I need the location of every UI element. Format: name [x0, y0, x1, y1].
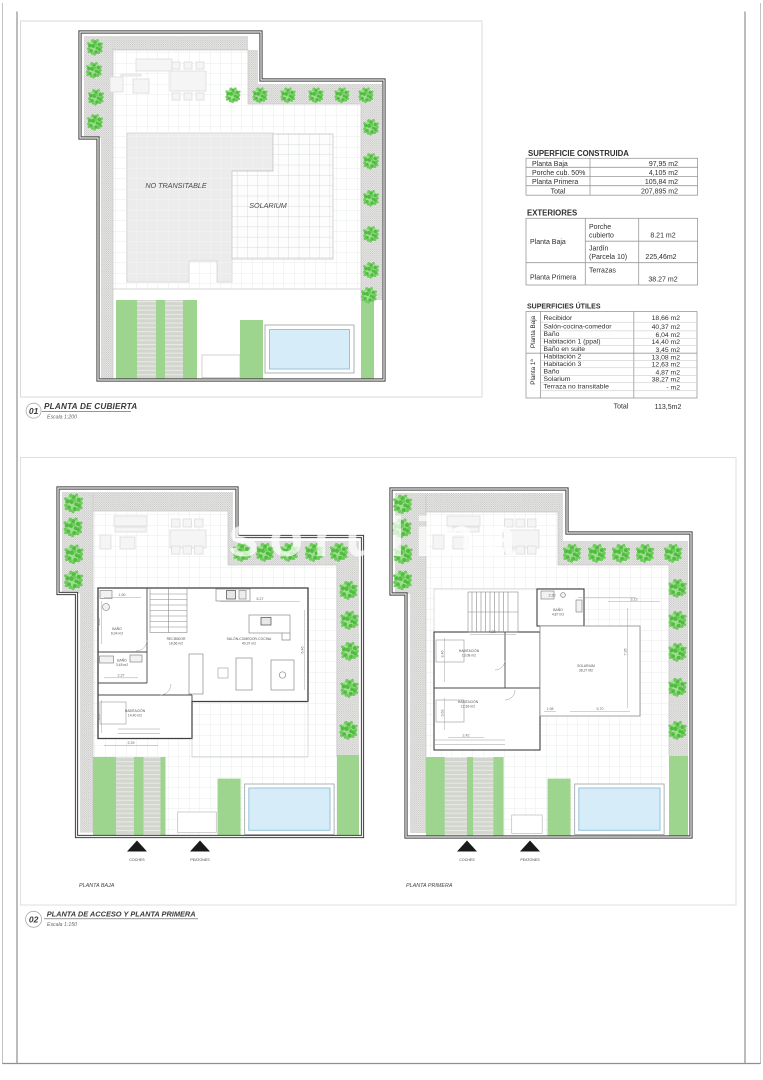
svg-text:8.21 m2: 8.21 m2 — [650, 233, 675, 240]
svg-text:BAÑO: BAÑO — [553, 607, 563, 612]
svg-text:Baño: Baño — [544, 331, 560, 338]
svg-text:Baño: Baño — [544, 369, 560, 376]
svg-text:3,63: 3,63 — [440, 710, 444, 717]
svg-text:14,40 m2: 14,40 m2 — [652, 339, 681, 346]
svg-text:SOLARIUM: SOLARIUM — [249, 201, 287, 210]
svg-text:Salón-cocina-comedor: Salón-cocina-comedor — [544, 324, 613, 331]
svg-text:SUPERFICIE CONSTRUIDA: SUPERFICIE CONSTRUIDA — [528, 149, 629, 158]
svg-text:RECIBIDOR: RECIBIDOR — [167, 637, 186, 641]
svg-text:Planta Baja: Planta Baja — [530, 315, 537, 348]
svg-text:6,04 m2: 6,04 m2 — [111, 632, 123, 636]
svg-text:18,66 m2: 18,66 m2 — [652, 315, 681, 322]
svg-text:SALÓN-COMEDOR-COCINA: SALÓN-COMEDOR-COCINA — [227, 636, 272, 641]
svg-text:SOLARIUM: SOLARIUM — [577, 664, 595, 668]
svg-text:Solarium: Solarium — [544, 376, 571, 383]
svg-text:1,50: 1,50 — [119, 593, 126, 597]
svg-text:Total: Total — [551, 188, 566, 195]
svg-text:sorulina: sorulina — [228, 505, 526, 568]
svg-text:225,46m2: 225,46m2 — [645, 254, 676, 261]
svg-text:12,63 m2: 12,63 m2 — [461, 705, 475, 709]
svg-text:3,39: 3,39 — [128, 741, 135, 745]
svg-text:18,66 m2: 18,66 m2 — [169, 642, 183, 646]
svg-text:(Parcela 10): (Parcela 10) — [589, 254, 627, 261]
svg-text:Planta 1ª: Planta 1ª — [530, 359, 537, 385]
svg-text:7,35: 7,35 — [624, 649, 628, 656]
svg-text:Terraza no transitable: Terraza no transitable — [544, 384, 610, 391]
svg-text:13,08 m2: 13,08 m2 — [462, 654, 476, 658]
svg-text:Baño en suite: Baño en suite — [544, 346, 586, 353]
svg-text:4,87 m2: 4,87 m2 — [655, 369, 680, 376]
svg-text:12,63 m2: 12,63 m2 — [652, 362, 681, 369]
svg-text:3,45 m2: 3,45 m2 — [655, 347, 680, 354]
svg-text:13,08 m2: 13,08 m2 — [652, 354, 681, 361]
svg-text:HABITACIÓN: HABITACIÓN — [458, 699, 479, 704]
svg-text:Terrazas: Terrazas — [589, 268, 616, 275]
svg-text:113,5m2: 113,5m2 — [655, 404, 682, 411]
svg-text:3,17: 3,17 — [97, 713, 101, 720]
svg-text:Porche: Porche — [589, 224, 611, 231]
svg-text:PEATONES: PEATONES — [520, 858, 540, 862]
svg-text:40,37 m2: 40,37 m2 — [652, 324, 681, 331]
svg-text:38.27 m2: 38.27 m2 — [648, 277, 677, 284]
svg-text:Total: Total — [614, 404, 629, 411]
svg-text:BAÑO: BAÑO — [112, 626, 122, 631]
svg-text:5,70: 5,70 — [597, 707, 604, 711]
svg-text:PLANTA DE CUBIERTA: PLANTA DE CUBIERTA — [44, 402, 137, 411]
svg-text:Escala 1:150: Escala 1:150 — [47, 922, 77, 928]
svg-text:BAÑO: BAÑO — [117, 658, 127, 663]
svg-text:6,27: 6,27 — [257, 597, 264, 601]
svg-text:PLANTA BAJA: PLANTA BAJA — [79, 883, 115, 889]
svg-text:Planta Baja: Planta Baja — [530, 239, 566, 246]
svg-text:97,95 m2: 97,95 m2 — [649, 161, 678, 168]
svg-text:3,13: 3,13 — [631, 598, 638, 602]
svg-text:HABITACIÓN: HABITACIÓN — [125, 708, 146, 713]
svg-text:4,23: 4,23 — [489, 630, 496, 634]
svg-text:4,87 m2: 4,87 m2 — [552, 613, 564, 617]
svg-text:PLANTA DE ACCESO Y PLANTA PRIM: PLANTA DE ACCESO Y PLANTA PRIMERA — [47, 910, 196, 919]
svg-text:02: 02 — [29, 915, 39, 925]
svg-text:Habitación 3: Habitación 3 — [544, 361, 582, 368]
svg-text:38,27 m2: 38,27 m2 — [652, 377, 681, 384]
svg-text:207,895 m2: 207,895 m2 — [641, 188, 678, 195]
svg-text:38,27 M2: 38,27 M2 — [579, 669, 593, 673]
svg-text:40,37 m2: 40,37 m2 — [242, 642, 256, 646]
svg-text:Planta Primera: Planta Primera — [530, 275, 576, 282]
svg-text:PEATONES: PEATONES — [190, 858, 210, 862]
svg-text:COCHES: COCHES — [459, 858, 475, 862]
svg-text:3,65: 3,65 — [97, 619, 101, 626]
svg-text:COCHES: COCHES — [129, 858, 145, 862]
svg-text:4,105 m2: 4,105 m2 — [649, 170, 678, 177]
svg-text:3,45 m2: 3,45 m2 — [116, 663, 128, 667]
svg-text:6,46: 6,46 — [300, 647, 304, 654]
svg-text:Porche cub. 50%: Porche cub. 50% — [532, 170, 585, 177]
svg-text:3,46: 3,46 — [440, 651, 444, 658]
svg-text:Escala 1:200: Escala 1:200 — [47, 415, 77, 421]
svg-text:14,40 m2: 14,40 m2 — [128, 714, 142, 718]
svg-text:cubierto: cubierto — [589, 233, 614, 240]
svg-text:Habitación 1 (ppal): Habitación 1 (ppal) — [544, 339, 601, 346]
svg-text:2,37: 2,37 — [118, 673, 125, 677]
svg-text:Planta Primera: Planta Primera — [532, 179, 578, 186]
svg-text:Planta Baja: Planta Baja — [532, 161, 568, 168]
svg-text:Habitación 2: Habitación 2 — [544, 354, 582, 361]
svg-text:NO TRANSITABLE: NO TRANSITABLE — [145, 181, 207, 190]
svg-text:PLANTA PRIMERA: PLANTA PRIMERA — [406, 883, 453, 889]
svg-text:EXTERIORES: EXTERIORES — [527, 209, 577, 218]
svg-text:Recibidor: Recibidor — [544, 315, 573, 322]
svg-text:HABITACIÓN: HABITACIÓN — [459, 648, 480, 653]
svg-text:- m2: - m2 — [666, 384, 680, 391]
svg-text:2,30: 2,30 — [549, 594, 556, 598]
svg-text:105,84 m2: 105,84 m2 — [645, 179, 678, 186]
svg-text:1,98: 1,98 — [547, 707, 554, 711]
svg-text:6,04 m2: 6,04 m2 — [655, 332, 680, 339]
svg-text:Jardín: Jardín — [589, 246, 609, 253]
svg-text:2,42: 2,42 — [463, 733, 470, 737]
svg-text:01: 01 — [29, 406, 39, 416]
svg-text:SUPERFICIES ÚTILES: SUPERFICIES ÚTILES — [527, 302, 601, 311]
